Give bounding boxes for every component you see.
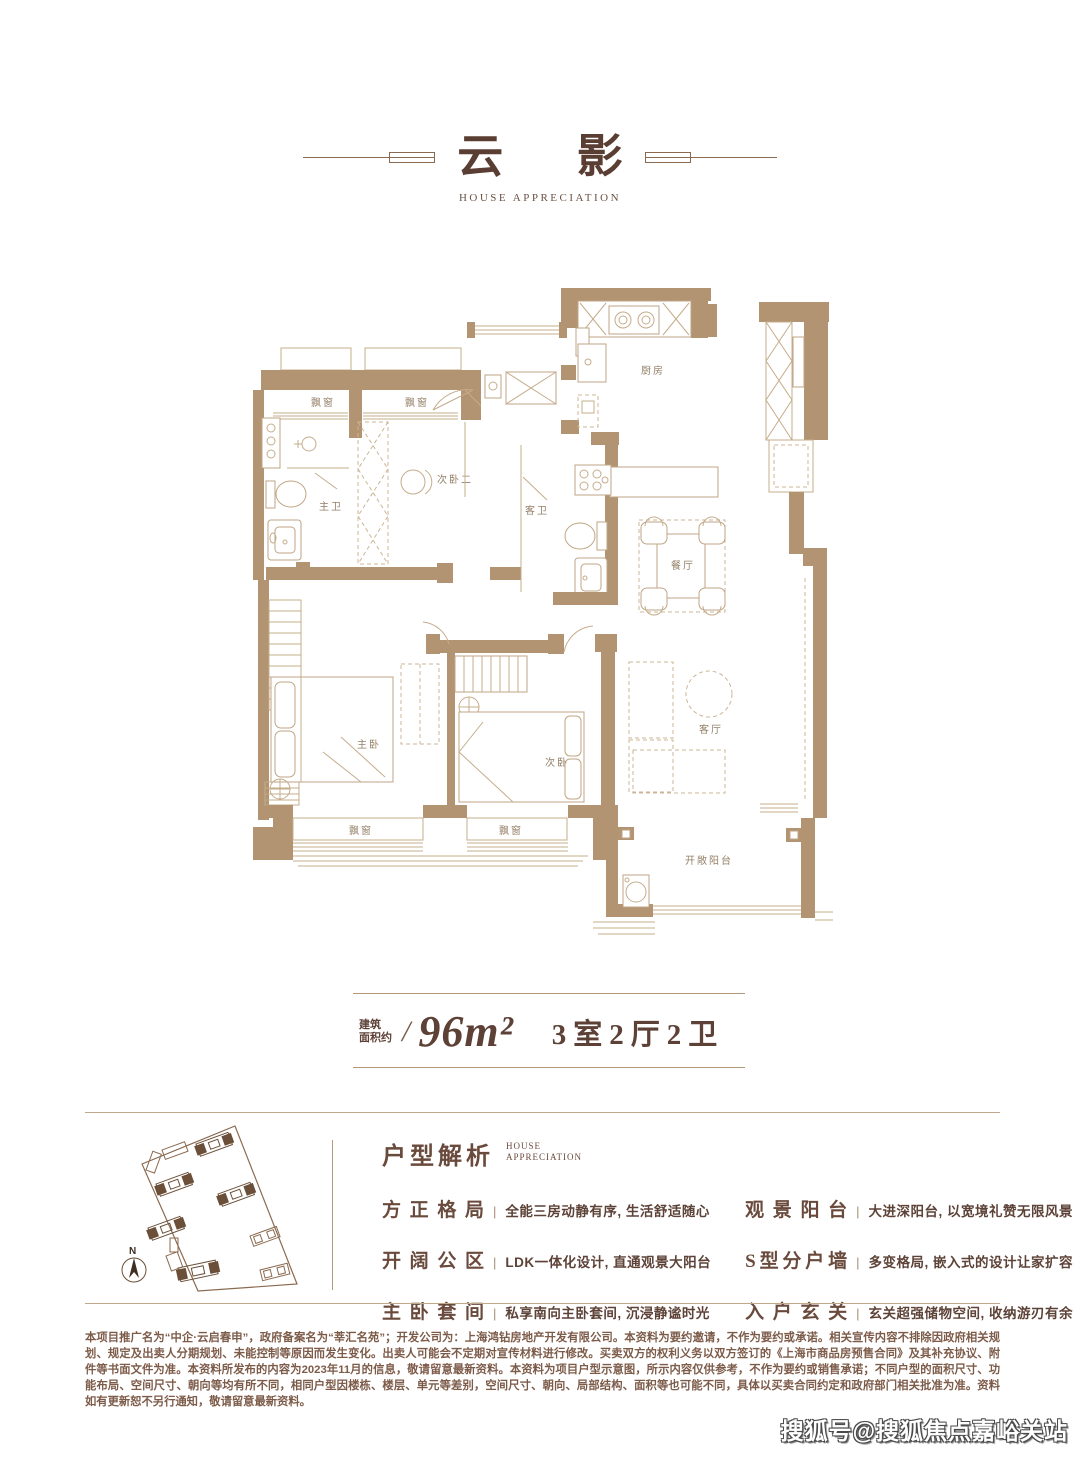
compass-label: N bbox=[129, 1246, 136, 1257]
analysis-desc: 玄关超强储物空间, 收纳游刃有余 bbox=[869, 1302, 1074, 1322]
room-label-bay-window-3: 飘窗 bbox=[349, 824, 373, 837]
watermark: 搜狐号@搜狐焦点嘉峪关站 bbox=[781, 1412, 1068, 1446]
floorplan-page: 云影 HOUSE APPRECIATION 飘窗 飘窗 bbox=[0, 0, 1080, 1465]
page-subtitle: HOUSE APPRECIATION bbox=[0, 192, 1080, 204]
analysis-term: 主卧套间 bbox=[382, 1297, 484, 1324]
area-separator: / bbox=[402, 1015, 410, 1049]
divider-bottom bbox=[85, 1303, 1000, 1304]
analysis-term: 观景阳台 bbox=[745, 1195, 847, 1222]
layout-value: 3室2厅2卫 bbox=[552, 1011, 725, 1053]
analysis-desc: 多变格局, 嵌入式的设计让家扩容 bbox=[869, 1251, 1074, 1271]
room-label-second-bed2: 次卧二 bbox=[437, 473, 473, 486]
analysis-term: 方正格局 bbox=[382, 1195, 484, 1222]
analysis-item: 方正格局 | 全能三房动静有序, 生活舒适随心 bbox=[382, 1195, 711, 1222]
analysis-col-left: 方正格局 | 全能三房动静有序, 生活舒适随心 开阔公区 | LDK一体化设计,… bbox=[382, 1195, 711, 1348]
area-info: 建筑 面积约 / 96m² 3室2厅2卫 bbox=[353, 993, 745, 1068]
analysis-desc: 大进深阳台, 以宽境礼赞无限风景 bbox=[869, 1200, 1074, 1220]
analysis-separator: | bbox=[856, 1255, 859, 1270]
room-label-master-bath: 主卫 bbox=[319, 501, 343, 513]
analysis-desc: 私享南向主卧套间, 沉浸静谧时光 bbox=[505, 1302, 710, 1322]
title-block: 云影 HOUSE APPRECIATION bbox=[0, 128, 1080, 204]
analysis-separator: | bbox=[493, 1255, 496, 1270]
room-label-bay-window-4: 飘窗 bbox=[499, 824, 523, 837]
analysis-heading-en: HOUSE APPRECIATION bbox=[506, 1141, 582, 1163]
room-label-second-bed: 次卧 bbox=[545, 756, 569, 769]
area-value: 96m² bbox=[418, 1006, 513, 1057]
analysis-item: 主卧套间 | 私享南向主卧套间, 沉浸静谧时光 bbox=[382, 1297, 711, 1324]
area-prefix: 建筑 面积约 bbox=[359, 1019, 392, 1045]
analysis-separator: | bbox=[856, 1204, 859, 1219]
analysis-separator: | bbox=[856, 1306, 859, 1321]
analysis-term: 入户玄关 bbox=[745, 1297, 847, 1324]
room-label-bay-window-1: 飘窗 bbox=[311, 396, 335, 409]
disclaimer-text: 本项目推广名为“中企·云启春申”，政府备案名为“莘汇名苑”；开发公司为：上海鸿钻… bbox=[85, 1330, 1000, 1410]
analysis-heading: 户型解析 bbox=[382, 1136, 494, 1171]
compass-icon: N bbox=[122, 1246, 146, 1282]
analysis-col-right: 观景阳台 | 大进深阳台, 以宽境礼赞无限风景 S型分户墙 | 多变格局, 嵌入… bbox=[745, 1195, 1073, 1348]
analysis-section: 户型解析 HOUSE APPRECIATION 方正格局 | 全能三房动静有序,… bbox=[382, 1136, 1000, 1348]
title-deco-left bbox=[303, 152, 435, 163]
room-label-living: 客厅 bbox=[699, 723, 723, 736]
room-label-guest-bath: 客卫 bbox=[525, 504, 549, 517]
analysis-item: 开阔公区 | LDK一体化设计, 直通观景大阳台 bbox=[382, 1246, 711, 1273]
analysis-item: 入户玄关 | 玄关超强储物空间, 收纳游刃有余 bbox=[745, 1297, 1073, 1324]
analysis-separator: | bbox=[493, 1204, 496, 1219]
room-label-balcony: 开敞阳台 bbox=[685, 854, 733, 867]
analysis-term: S型分户墙 bbox=[745, 1246, 847, 1273]
analysis-item: S型分户墙 | 多变格局, 嵌入式的设计让家扩容 bbox=[745, 1246, 1073, 1273]
analysis-desc: 全能三房动静有序, 生活舒适随心 bbox=[505, 1200, 710, 1220]
analysis-separator: | bbox=[493, 1306, 496, 1321]
analysis-term: 开阔公区 bbox=[382, 1246, 484, 1273]
analysis-desc: LDK一体化设计, 直通观景大阳台 bbox=[505, 1251, 711, 1271]
site-plan: N bbox=[112, 1118, 322, 1298]
room-label-kitchen: 厨房 bbox=[641, 364, 665, 377]
room-label-master-bed: 主卧 bbox=[357, 738, 381, 751]
divider-vertical bbox=[332, 1140, 333, 1290]
divider-top bbox=[85, 1112, 1000, 1113]
room-label-dining: 餐厅 bbox=[671, 559, 695, 572]
analysis-item: 观景阳台 | 大进深阳台, 以宽境礼赞无限风景 bbox=[745, 1195, 1073, 1222]
room-label-bay-window-2: 飘窗 bbox=[405, 396, 429, 409]
floor-plan: 飘窗 飘窗 主卫 次卧二 bbox=[253, 282, 853, 972]
title-deco-right bbox=[645, 152, 777, 163]
